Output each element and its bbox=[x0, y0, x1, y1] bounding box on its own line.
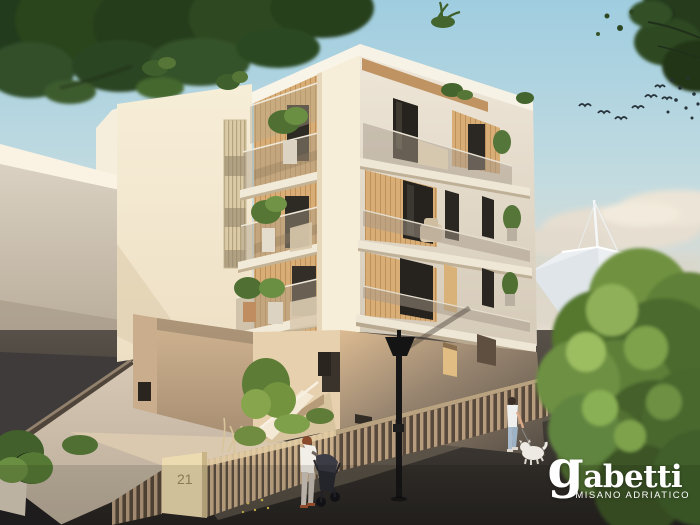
logo-tagline: MISANO ADRIATICO bbox=[575, 490, 690, 501]
logo-wordmark: gabetti bbox=[547, 448, 690, 492]
render-canvas: 21 bbox=[0, 0, 700, 525]
window bbox=[318, 352, 331, 376]
corner-pillar bbox=[317, 55, 360, 332]
basement-window bbox=[138, 382, 151, 401]
window bbox=[482, 268, 494, 308]
gabetti-logo: gabetti MISANO ADRIATICO bbox=[547, 448, 690, 501]
window bbox=[482, 196, 494, 239]
scene: 21 bbox=[0, 0, 700, 525]
